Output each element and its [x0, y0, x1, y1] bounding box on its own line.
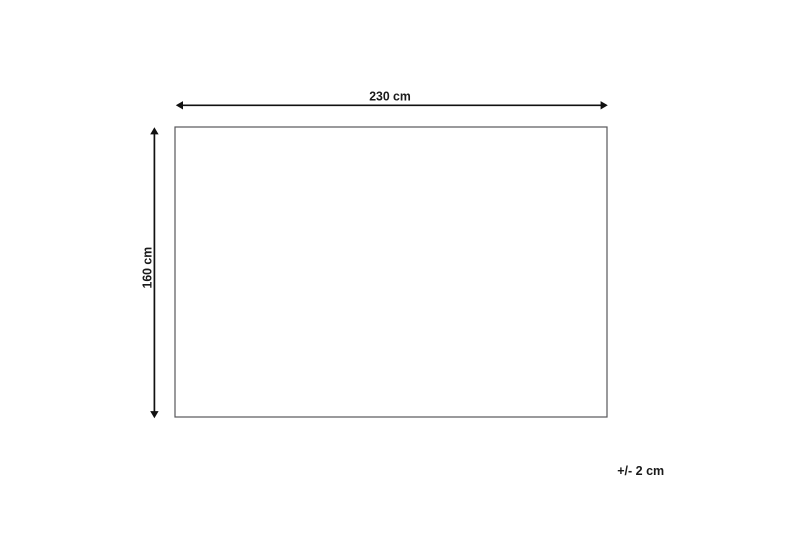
- svg-text:160 cm: 160 cm: [139, 247, 154, 289]
- svg-text:230 cm: 230 cm: [369, 88, 411, 103]
- svg-text:+/- 2 cm: +/- 2 cm: [617, 463, 664, 478]
